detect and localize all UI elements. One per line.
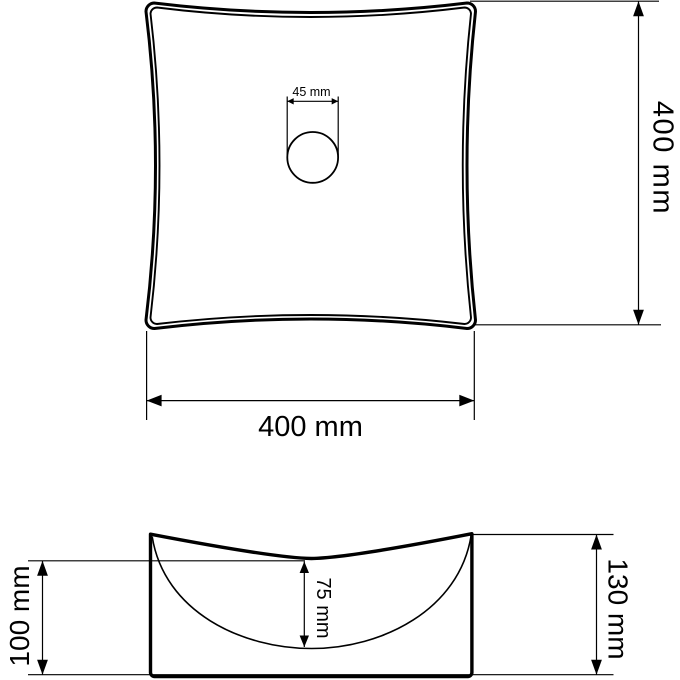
svg-text:100 mm: 100 mm: [4, 565, 35, 666]
svg-text:400 mm: 400 mm: [647, 101, 679, 215]
svg-text:45 mm: 45 mm: [292, 85, 330, 99]
svg-text:400 mm: 400 mm: [258, 411, 363, 443]
svg-text:75 mm: 75 mm: [312, 577, 334, 638]
svg-text:130 mm: 130 mm: [603, 558, 634, 659]
